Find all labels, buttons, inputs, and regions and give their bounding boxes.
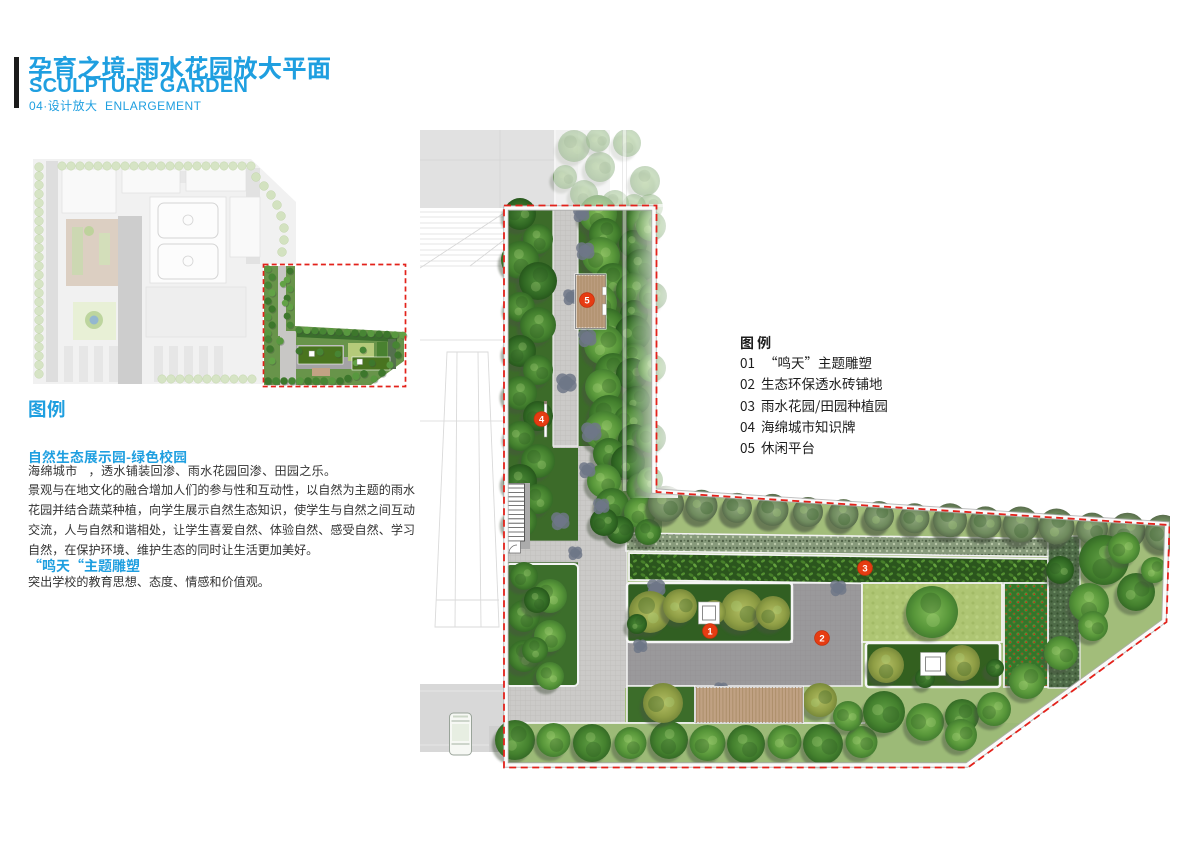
svg-text:5: 5 <box>584 295 590 306</box>
svg-text:4: 4 <box>539 414 545 425</box>
svg-text:2: 2 <box>819 633 824 644</box>
svg-text:1: 1 <box>707 626 713 637</box>
svg-text:3: 3 <box>862 563 867 574</box>
